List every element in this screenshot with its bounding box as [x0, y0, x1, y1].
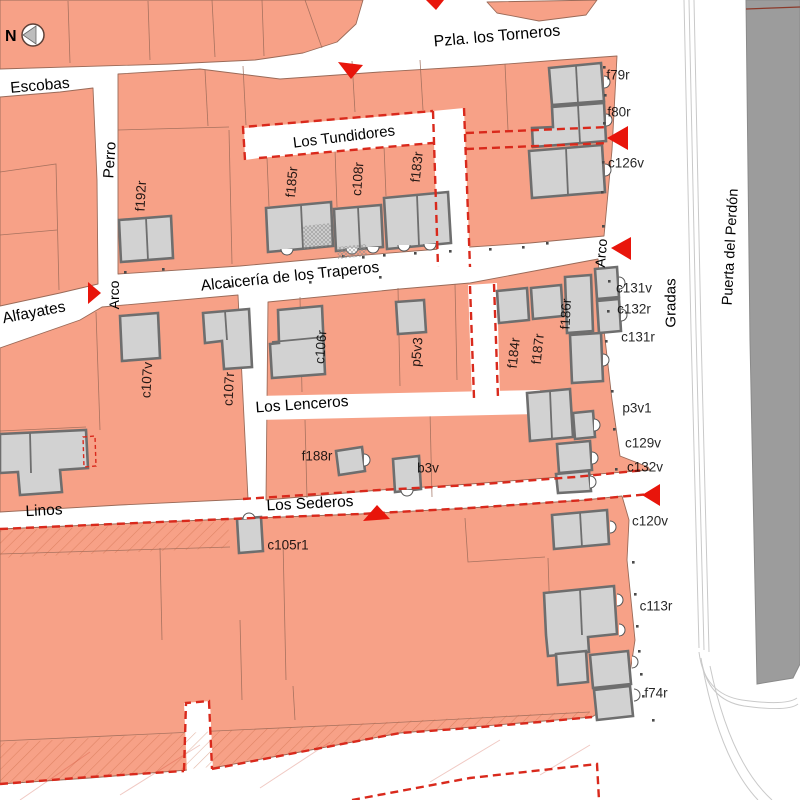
historic-city-plan: N Pzla. los TornerosEscobasPerroAlfayate…: [0, 0, 800, 800]
hatch-room: [303, 223, 332, 249]
building-b3v: [393, 456, 421, 492]
building-c105r1: [237, 517, 263, 553]
map-canvas: N: [0, 0, 800, 800]
building-c131r: [570, 333, 603, 383]
building-p5v3: [396, 300, 426, 334]
arrow-icon-arco-west: [88, 282, 101, 304]
compass-north-label: N: [5, 28, 17, 45]
building-f188r: [336, 447, 365, 475]
block-top-wedge: [487, 0, 597, 21]
building-c107v: [120, 313, 160, 361]
building-f187r: [531, 285, 563, 319]
building-c129v: [557, 441, 592, 473]
building-f74r-b: [594, 686, 633, 720]
arrow-icon-sederos-east: [642, 484, 660, 506]
building-f74r-a: [590, 651, 631, 688]
building-c132r: [597, 299, 621, 333]
north-compass-icon: N: [5, 24, 44, 46]
arrow-icon-top: [426, 0, 444, 10]
building-p3v1-annex: [573, 411, 595, 439]
building-f184r: [497, 288, 529, 323]
block-west: [0, 88, 98, 306]
cathedral-block-group: [684, 0, 800, 800]
building-c113r-annex: [556, 651, 588, 685]
building-c132v: [556, 471, 591, 493]
cathedral-block: [746, 0, 800, 684]
building-c131v: [595, 267, 619, 299]
building-f186r: [565, 275, 593, 333]
arrow-icon-arco-east: [611, 237, 631, 260]
